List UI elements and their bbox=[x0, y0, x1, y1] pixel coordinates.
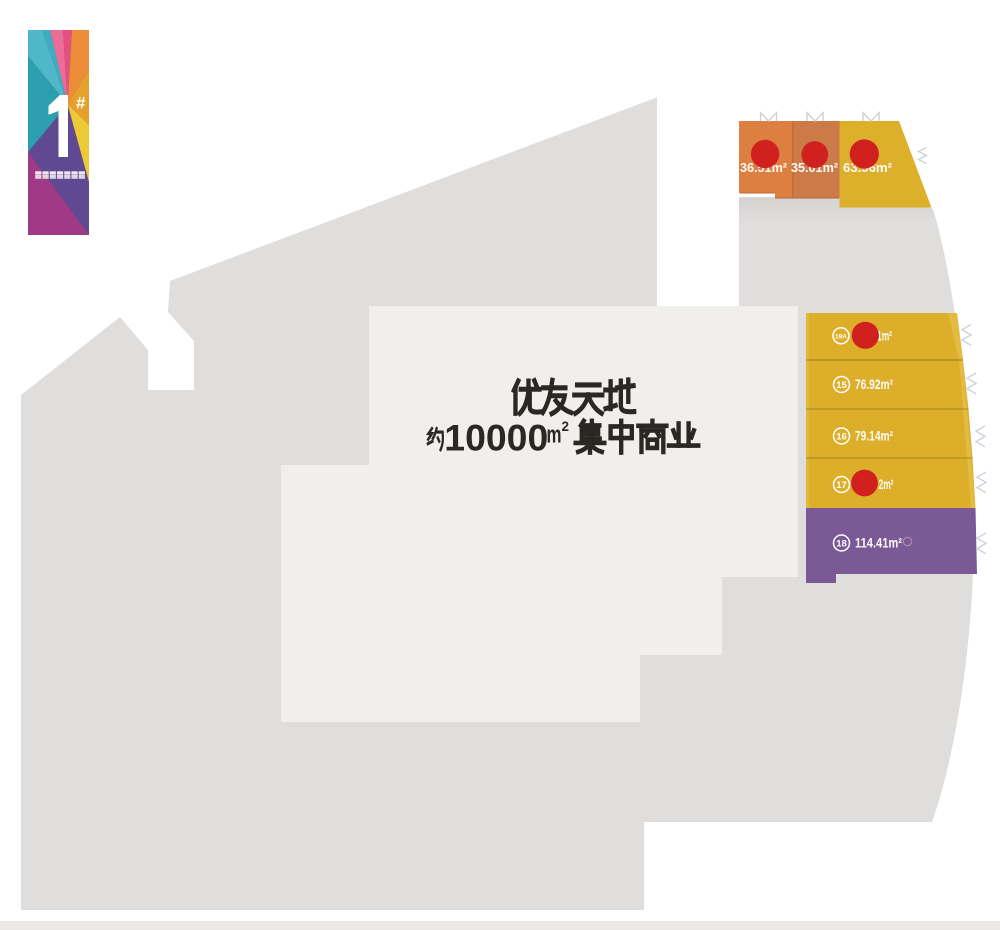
svg-text:1m²: 1m² bbox=[877, 329, 892, 344]
svg-text:2: 2 bbox=[562, 419, 570, 434]
svg-text:15: 15 bbox=[836, 380, 847, 391]
svg-text:18: 18 bbox=[836, 539, 847, 550]
svg-text:2m²: 2m² bbox=[879, 477, 894, 492]
svg-text:114.41m²: 114.41m² bbox=[855, 536, 902, 551]
svg-text:19A: 19A bbox=[835, 333, 847, 340]
svg-text:m: m bbox=[547, 422, 562, 449]
svg-text:#: # bbox=[76, 94, 86, 113]
svg-text:79.14m²: 79.14m² bbox=[855, 429, 893, 444]
svg-text:17: 17 bbox=[836, 480, 847, 491]
svg-text:16: 16 bbox=[836, 432, 847, 443]
svg-text:10000: 10000 bbox=[444, 417, 548, 459]
svg-text:76.92m²: 76.92m² bbox=[855, 377, 893, 392]
